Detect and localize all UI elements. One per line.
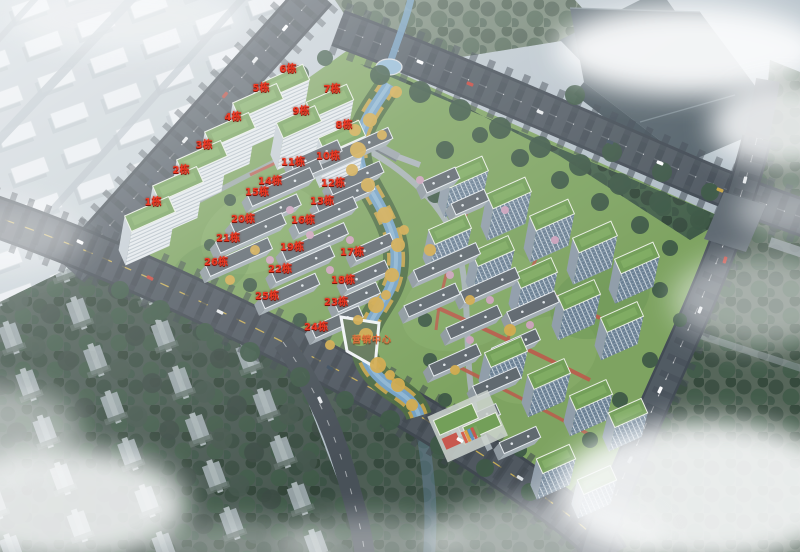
aerial-rendering: 1栋2栋3栋4栋5栋6栋7栋8栋9栋10栋11栋12栋13栋14栋15栋16栋1… <box>0 0 800 552</box>
global-tint <box>0 0 800 552</box>
scene-svg <box>0 0 800 552</box>
